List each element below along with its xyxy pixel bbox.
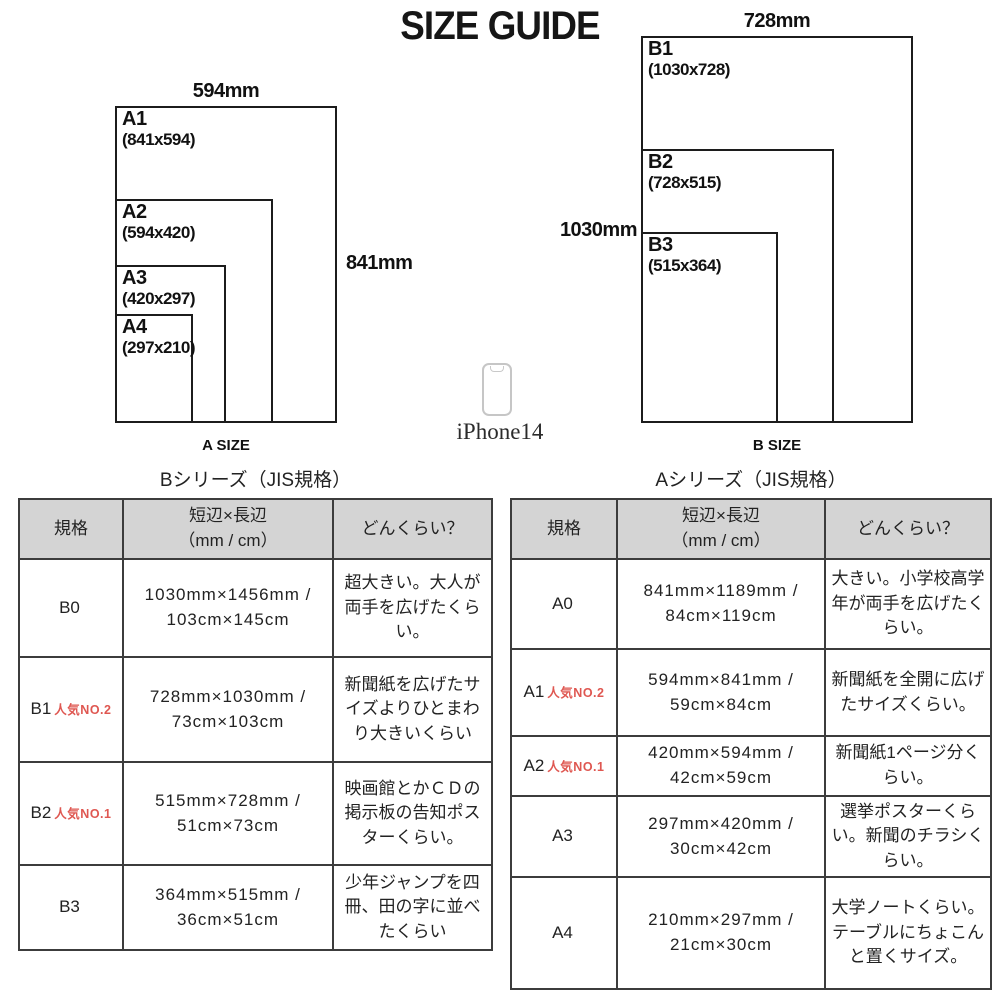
cell-desc: 選挙ポスターくらい。新聞のチラシくらい。 [825, 796, 991, 877]
cell-code: B3 [19, 865, 123, 950]
popularity-badge: 人気NO.2 [547, 686, 604, 700]
paper-b3-dims: (515x364) [648, 257, 721, 275]
cell-code: B0 [19, 559, 123, 657]
popularity-badge: 人気NO.1 [54, 807, 111, 821]
paper-a1-name: A1 [122, 109, 195, 131]
table-row-a0: A0 841mm×1189mm / 84cm×119cm 大きい。小学校高学年が… [511, 559, 991, 649]
paper-a2-dims: (594x420) [122, 224, 195, 242]
cell-size: 364mm×515mm / 36cm×51cm [123, 865, 333, 950]
header-size-line1: 短辺×長辺 [189, 506, 267, 525]
header-size: 短辺×長辺 （mm / cm） [123, 499, 333, 559]
size-code: A3 [552, 826, 573, 845]
table-row-b3: B3 364mm×515mm / 36cm×51cm 少年ジャンプを四冊、田の字… [19, 865, 492, 950]
cell-size: 515mm×728mm / 51cm×73cm [123, 762, 333, 865]
paper-b2-label: B2 (728x515) [648, 152, 721, 192]
cell-desc: 超大きい。大人が両手を広げたくらい。 [333, 559, 492, 657]
paper-a3-name: A3 [122, 268, 195, 290]
paper-b1-label: B1 (1030x728) [648, 39, 730, 79]
cell-code: A1人気NO.2 [511, 649, 617, 736]
table-header-row: 規格 短辺×長辺 （mm / cm） どんくらい？ [511, 499, 991, 559]
paper-b3-label: B3 (515x364) [648, 235, 721, 275]
header-size-line1: 短辺×長辺 [682, 506, 760, 525]
table-row-b2: B2人気NO.1 515mm×728mm / 51cm×73cm 映画館とかＣＤ… [19, 762, 492, 865]
table-row-a1: A1人気NO.2 594mm×841mm / 59cm×84cm 新聞紙を全開に… [511, 649, 991, 736]
iphone-icon [482, 363, 512, 416]
paper-a1-dims: (841x594) [122, 131, 195, 149]
cell-desc: 少年ジャンプを四冊、田の字に並べたくらい [333, 865, 492, 950]
iphone-label: iPhone14 [430, 419, 570, 445]
paper-b1-name: B1 [648, 39, 730, 61]
header-desc: どんくらい？ [333, 499, 492, 559]
iphone-notch-icon [490, 366, 504, 372]
size-code: A1 [524, 682, 545, 701]
paper-b3: B3 (515x364) [641, 232, 778, 423]
b-series-table-block: Bシリーズ（JIS規格） 規格 短辺×長辺 （mm / cm） どんくらい？ B… [18, 468, 493, 951]
header-spec: 規格 [511, 499, 617, 559]
cell-size: 420mm×594mm / 42cm×59cm [617, 736, 825, 796]
size-code: A4 [552, 923, 573, 942]
size-guide-infographic: SIZE GUIDE 594mm 841mm A1 (841x594) A2 (… [0, 0, 1000, 1000]
popularity-badge: 人気NO.2 [54, 703, 111, 717]
cell-desc: 新聞紙1ページ分くらい。 [825, 736, 991, 796]
paper-a2-name: A2 [122, 202, 195, 224]
table-header-row: 規格 短辺×長辺 （mm / cm） どんくらい？ [19, 499, 492, 559]
a-size-diagram: A1 (841x594) A2 (594x420) A3 (420x297) A… [115, 106, 337, 423]
a-series-table-block: Aシリーズ（JIS規格） 規格 短辺×長辺 （mm / cm） どんくらい？ A… [510, 468, 992, 990]
header-size: 短辺×長辺 （mm / cm） [617, 499, 825, 559]
table-row-a4: A4 210mm×297mm / 21cm×30cm 大学ノートくらい。テーブル… [511, 877, 991, 989]
a-diagram-height-label: 841mm [346, 252, 412, 275]
cell-size: 594mm×841mm / 59cm×84cm [617, 649, 825, 736]
cell-code: A3 [511, 796, 617, 877]
b-series-table-title: Bシリーズ（JIS規格） [18, 468, 493, 494]
cell-desc: 新聞紙を広げたサイズよりひとまわり大きいくらい [333, 657, 492, 762]
cell-code: A2人気NO.1 [511, 736, 617, 796]
a-series-table: 規格 短辺×長辺 （mm / cm） どんくらい？ A0 841mm×1189m… [510, 498, 992, 990]
a-diagram-width-label: 594mm [115, 80, 337, 103]
b-diagram-width-label: 728mm [641, 10, 913, 33]
a-size-caption: A SIZE [115, 437, 337, 454]
cell-code: B1人気NO.2 [19, 657, 123, 762]
cell-size: 841mm×1189mm / 84cm×119cm [617, 559, 825, 649]
paper-a4-dims: (297x210) [122, 339, 195, 357]
table-row-a3: A3 297mm×420mm / 30cm×42cm 選挙ポスターくらい。新聞の… [511, 796, 991, 877]
paper-b1-dims: (1030x728) [648, 61, 730, 79]
size-code: B0 [59, 598, 80, 617]
paper-b2-dims: (728x515) [648, 174, 721, 192]
paper-a3-label: A3 (420x297) [122, 268, 195, 308]
paper-a3-dims: (420x297) [122, 290, 195, 308]
cell-desc: 大きい。小学校高学年が両手を広げたくらい。 [825, 559, 991, 649]
popularity-badge: 人気NO.1 [547, 760, 604, 774]
paper-a4-name: A4 [122, 317, 195, 339]
table-row-b0: B0 1030mm×1456mm / 103cm×145cm 超大きい。大人が両… [19, 559, 492, 657]
b-diagram-height-label: 1030mm [555, 219, 637, 242]
cell-desc: 大学ノートくらい。テーブルにちょこんと置くサイズ。 [825, 877, 991, 989]
b-series-table: 規格 短辺×長辺 （mm / cm） どんくらい？ B0 1030mm×1456… [18, 498, 493, 951]
header-size-line2: （mm / cm） [178, 531, 277, 550]
b-size-diagram: B1 (1030x728) B2 (728x515) B3 (515x364) [641, 36, 913, 423]
size-code: B1 [31, 699, 52, 718]
header-desc: どんくらい？ [825, 499, 991, 559]
paper-b3-name: B3 [648, 235, 721, 257]
cell-size: 728mm×1030mm / 73cm×103cm [123, 657, 333, 762]
size-code: A0 [552, 594, 573, 613]
paper-a2-label: A2 (594x420) [122, 202, 195, 242]
cell-desc: 新聞紙を全開に広げたサイズくらい。 [825, 649, 991, 736]
size-code: B3 [59, 897, 80, 916]
cell-size: 297mm×420mm / 30cm×42cm [617, 796, 825, 877]
header-size-line2: （mm / cm） [671, 531, 770, 550]
cell-code: A4 [511, 877, 617, 989]
paper-a1-label: A1 (841x594) [122, 109, 195, 149]
paper-a4: A4 (297x210) [115, 314, 193, 423]
size-code: B2 [31, 803, 52, 822]
cell-size: 1030mm×1456mm / 103cm×145cm [123, 559, 333, 657]
table-row-b1: B1人気NO.2 728mm×1030mm / 73cm×103cm 新聞紙を広… [19, 657, 492, 762]
a-series-table-title: Aシリーズ（JIS規格） [510, 468, 992, 494]
size-code: A2 [524, 756, 545, 775]
cell-desc: 映画館とかＣＤの掲示板の告知ポスターくらい。 [333, 762, 492, 865]
cell-code: B2人気NO.1 [19, 762, 123, 865]
b-size-caption: B SIZE [641, 437, 913, 454]
table-row-a2: A2人気NO.1 420mm×594mm / 42cm×59cm 新聞紙1ページ… [511, 736, 991, 796]
cell-code: A0 [511, 559, 617, 649]
header-spec: 規格 [19, 499, 123, 559]
paper-a4-label: A4 (297x210) [122, 317, 195, 357]
paper-b2-name: B2 [648, 152, 721, 174]
cell-size: 210mm×297mm / 21cm×30cm [617, 877, 825, 989]
